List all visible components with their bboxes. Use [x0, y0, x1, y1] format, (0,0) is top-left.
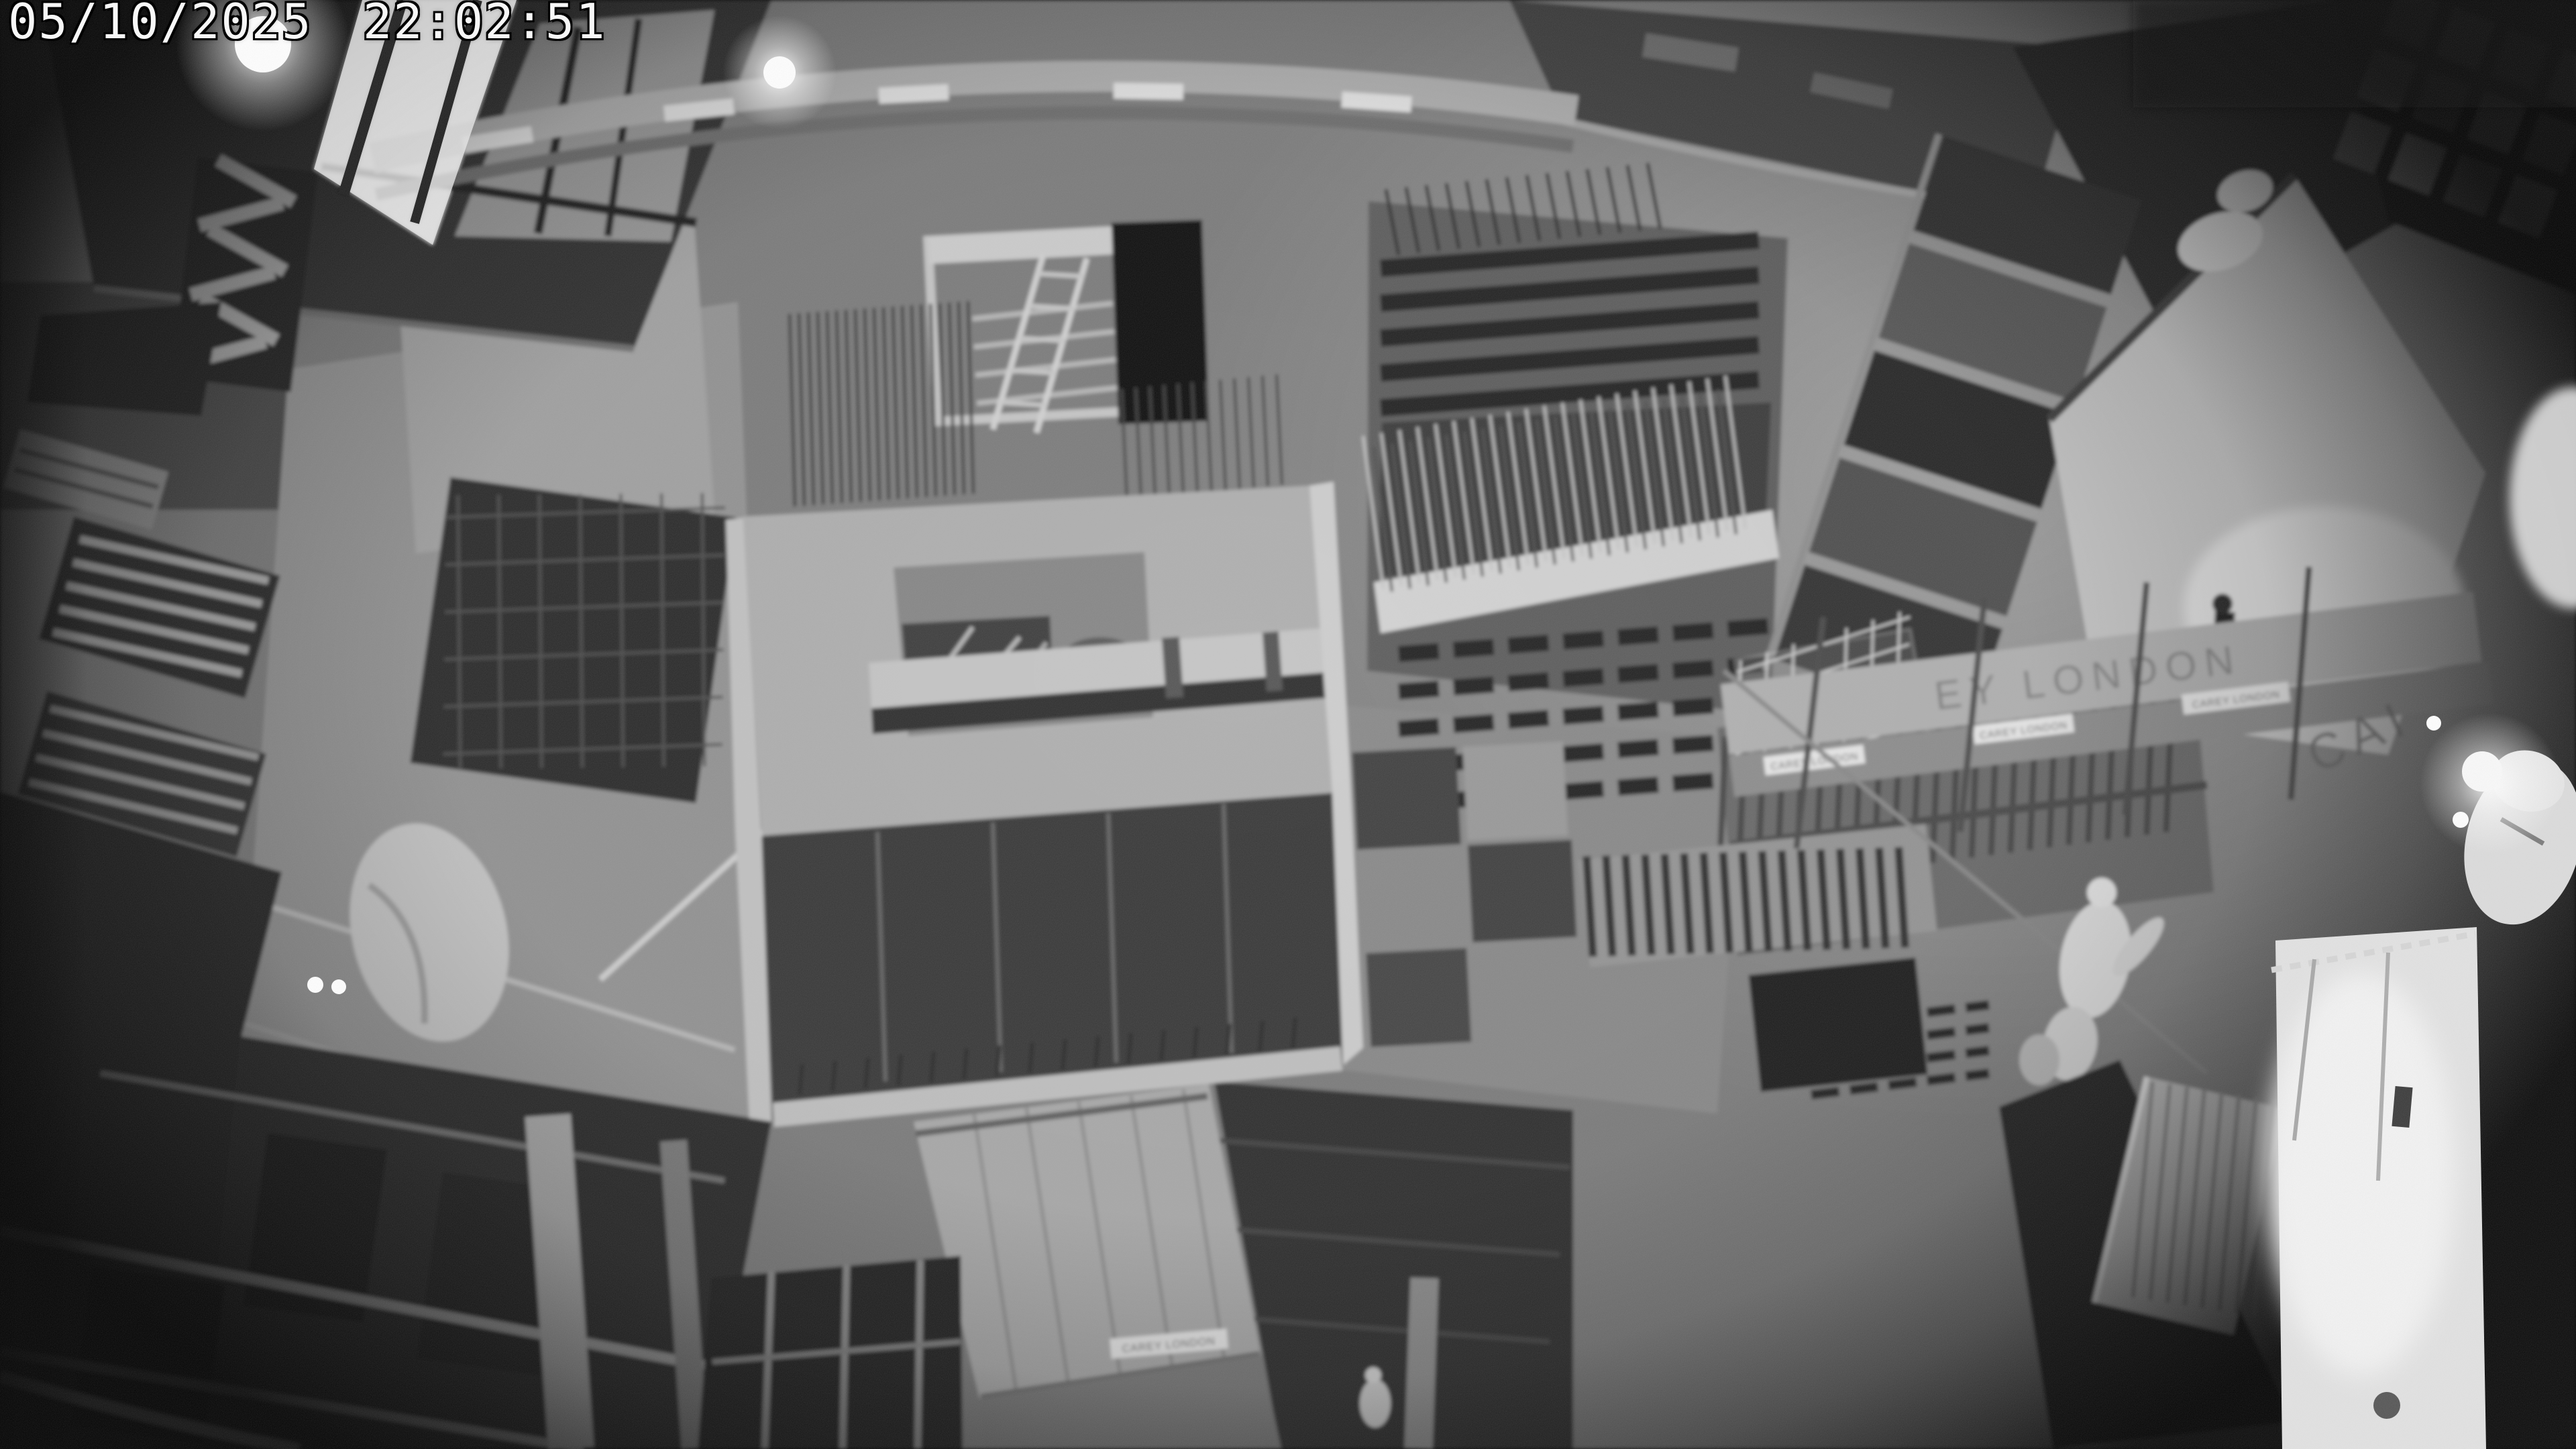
grain-overlay [0, 0, 2576, 1449]
cctv-frame: EY LONDON CAREY LONDON CAREY LONDON CARE… [0, 0, 2576, 1449]
timestamp-overlay: 05/10/2025 22:02:51 [8, 0, 606, 50]
construction-site-photo: EY LONDON CAREY LONDON CAREY LONDON CARE… [0, 0, 2576, 1449]
